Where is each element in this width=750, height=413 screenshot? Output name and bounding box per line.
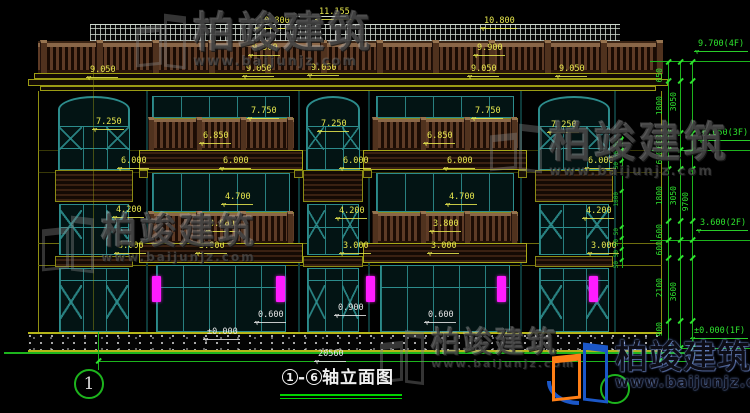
dimension-label: 3.000 — [427, 242, 459, 254]
watermark-name: 柏竣建筑 — [101, 214, 257, 251]
roof-post — [40, 40, 47, 74]
railing-post — [287, 117, 293, 151]
dimension-label: 6.000 — [117, 157, 149, 169]
watermark-name: 柏竣建筑 — [549, 122, 729, 165]
green-dim-text: 3050 — [670, 186, 678, 205]
dimension-label: 3.000 — [339, 242, 371, 254]
watermark-text-block: 柏竣建筑www.baijunjz.com — [101, 214, 257, 265]
railing-post — [148, 117, 154, 151]
window-x-brace — [59, 127, 82, 150]
dimension-label: 9.050 — [86, 66, 118, 78]
small-dim-text: 50 — [614, 261, 620, 268]
dimension-label-white: 20560 — [314, 350, 346, 362]
green-dim-text: 900 — [656, 322, 664, 336]
dimension-label: 3.800 — [429, 220, 461, 232]
dimension-label-white: 0.900 — [334, 304, 366, 316]
green-dim-text: 600 — [656, 224, 664, 238]
brand-name: 柏竣建筑 — [615, 340, 750, 374]
small-dim-text: 50 — [614, 250, 620, 257]
watermark-name: 柏竣建筑 — [193, 12, 373, 55]
railing-post — [420, 211, 426, 244]
dimension-label: 7.750 — [471, 107, 503, 119]
dimension-label-white: 0.600 — [424, 311, 456, 323]
title-text: 轴立面图 — [322, 368, 394, 388]
green-dim-text: 650 — [656, 68, 664, 82]
dimension-label-white: 0.600 — [254, 311, 286, 323]
axis-bubble-1: 1 — [74, 369, 104, 399]
axis-1-grid-line — [98, 332, 99, 370]
railing-post — [511, 211, 517, 244]
dimension-label: 7.250 — [92, 118, 124, 130]
watermark-text-block: 柏竣建筑www.baijunjz.com — [549, 122, 729, 180]
watermark-icon-tower — [164, 14, 186, 69]
window-x-brace — [540, 210, 562, 239]
dimension-label: 4.200 — [335, 207, 367, 219]
balcony-bracket — [294, 170, 303, 178]
brand-building-icon — [552, 340, 608, 402]
wall-lamp — [276, 276, 285, 302]
spandrel-band — [535, 256, 613, 267]
cad-elevation-canvas: 1 11.15510.80010.8009.9009.9009.0509.050… — [0, 0, 750, 413]
watermark-icon-tower — [519, 124, 542, 174]
dimension-label: 4.700 — [445, 193, 477, 205]
title-axis-start-circle: 1 — [282, 369, 298, 385]
wall-lamp — [152, 276, 161, 302]
window-transom — [381, 287, 509, 288]
wall-pilaster — [298, 91, 300, 332]
watermark: 柏竣建筑www.baijunjz.com — [490, 122, 729, 180]
railing-post — [372, 211, 378, 244]
roof-post — [432, 40, 439, 74]
dimension-label: 6.850 — [199, 132, 231, 144]
dimension-label: 9.900 — [473, 44, 505, 56]
window-x-brace — [540, 285, 562, 319]
watermark-url: www.baijunjz.com — [549, 165, 729, 180]
wall-lamp — [497, 276, 506, 302]
title-separator: - — [298, 368, 306, 388]
watermark-building-icon — [136, 12, 186, 68]
dimension-label: 9.050 — [467, 65, 499, 77]
dimension-label: 10.800 — [480, 17, 517, 29]
brand-url: www.baijunjz.com — [615, 374, 750, 391]
spandrel-band — [55, 170, 133, 202]
watermark-building-icon — [490, 122, 542, 172]
spandrel-band — [303, 170, 363, 202]
title-underline-1 — [280, 394, 402, 396]
watermark-icon-tower — [405, 330, 424, 385]
watermark: 柏竣建筑www.baijunjz.com — [42, 214, 257, 272]
watermark-icon-tower — [490, 133, 517, 172]
railing-post — [464, 211, 470, 244]
drawing-title: 1-6轴立面图 — [282, 367, 394, 389]
dimension-label-white: ±0.000 — [203, 328, 240, 340]
small-dim-text: 50 — [614, 239, 620, 246]
elevation-flag: 3.600(2F) — [696, 219, 748, 231]
extension-line-left — [93, 66, 94, 330]
railing-post — [372, 117, 378, 151]
green-dim-text: 9700 — [682, 192, 690, 211]
dimension-label: 7.750 — [247, 107, 279, 119]
ground-door — [307, 268, 359, 332]
window-x-brace — [106, 127, 129, 150]
watermark-icon-tower — [42, 227, 69, 272]
window-x-brace — [106, 285, 128, 319]
watermark-text-block: 柏竣建筑www.baijunjz.com — [193, 12, 373, 70]
ground-door — [59, 268, 129, 332]
balcony-bracket — [139, 170, 148, 178]
balcony-bracket — [363, 170, 372, 178]
dimension-label: 6.000 — [443, 157, 475, 169]
roof-post — [544, 40, 551, 74]
railing-post — [464, 117, 470, 151]
dimension-label: 6.850 — [423, 132, 455, 144]
watermark-url: www.baijunjz.com — [101, 251, 257, 265]
title-axis-end-circle: 6 — [306, 369, 322, 385]
brand-logo: 柏竣建筑 www.baijunjz.com — [552, 340, 750, 402]
small-dim-text: 1800 — [614, 192, 620, 206]
roof-post — [600, 40, 607, 74]
watermark-url: www.baijunjz.com — [193, 55, 373, 70]
wall-lamp — [589, 276, 598, 302]
green-dim-text: 3050 — [670, 92, 678, 111]
window-x-brace — [308, 210, 325, 239]
wall-lamp — [366, 276, 375, 302]
green-dim-text: 1800 — [656, 96, 664, 115]
window-x-brace — [308, 285, 325, 319]
title-underline-2 — [280, 398, 402, 399]
elevation-flag-line — [650, 61, 750, 62]
green-dim-text: 3600 — [670, 282, 678, 301]
green-dim-text: 1800 — [656, 186, 664, 205]
window-transom — [308, 280, 358, 281]
watermark-icon-tower — [136, 24, 162, 67]
window-x-brace — [60, 285, 82, 319]
small-dim-text: 50 — [614, 228, 620, 235]
watermark: 柏竣建筑www.baijunjz.com — [136, 12, 373, 70]
window-transom — [157, 287, 285, 288]
ground-door — [539, 268, 609, 332]
elevation-flag: 9.700(4F) — [694, 40, 748, 52]
dimension-label: 6.000 — [219, 157, 251, 169]
watermark-icon-tower — [71, 216, 94, 273]
roof-post — [376, 40, 383, 74]
railing-post — [287, 211, 293, 244]
roof-cornice-band-2 — [28, 79, 668, 86]
green-dim-text: 600 — [656, 241, 664, 255]
dimension-label: 9.050 — [555, 65, 587, 77]
watermark-building-icon — [42, 214, 94, 272]
dimension-label: 6.000 — [339, 157, 371, 169]
dimension-label: 4.700 — [221, 193, 253, 205]
spandrel-band — [303, 256, 363, 267]
dimension-label: 4.200 — [582, 207, 614, 219]
green-dim-line — [692, 62, 693, 348]
green-dim-text: 2100 — [656, 278, 664, 297]
dimension-label: 7.250 — [317, 120, 349, 132]
railing-post — [240, 117, 246, 151]
window-transom — [60, 280, 128, 281]
watermark: 柏竣建筑www.baijunjz.com — [380, 328, 575, 384]
